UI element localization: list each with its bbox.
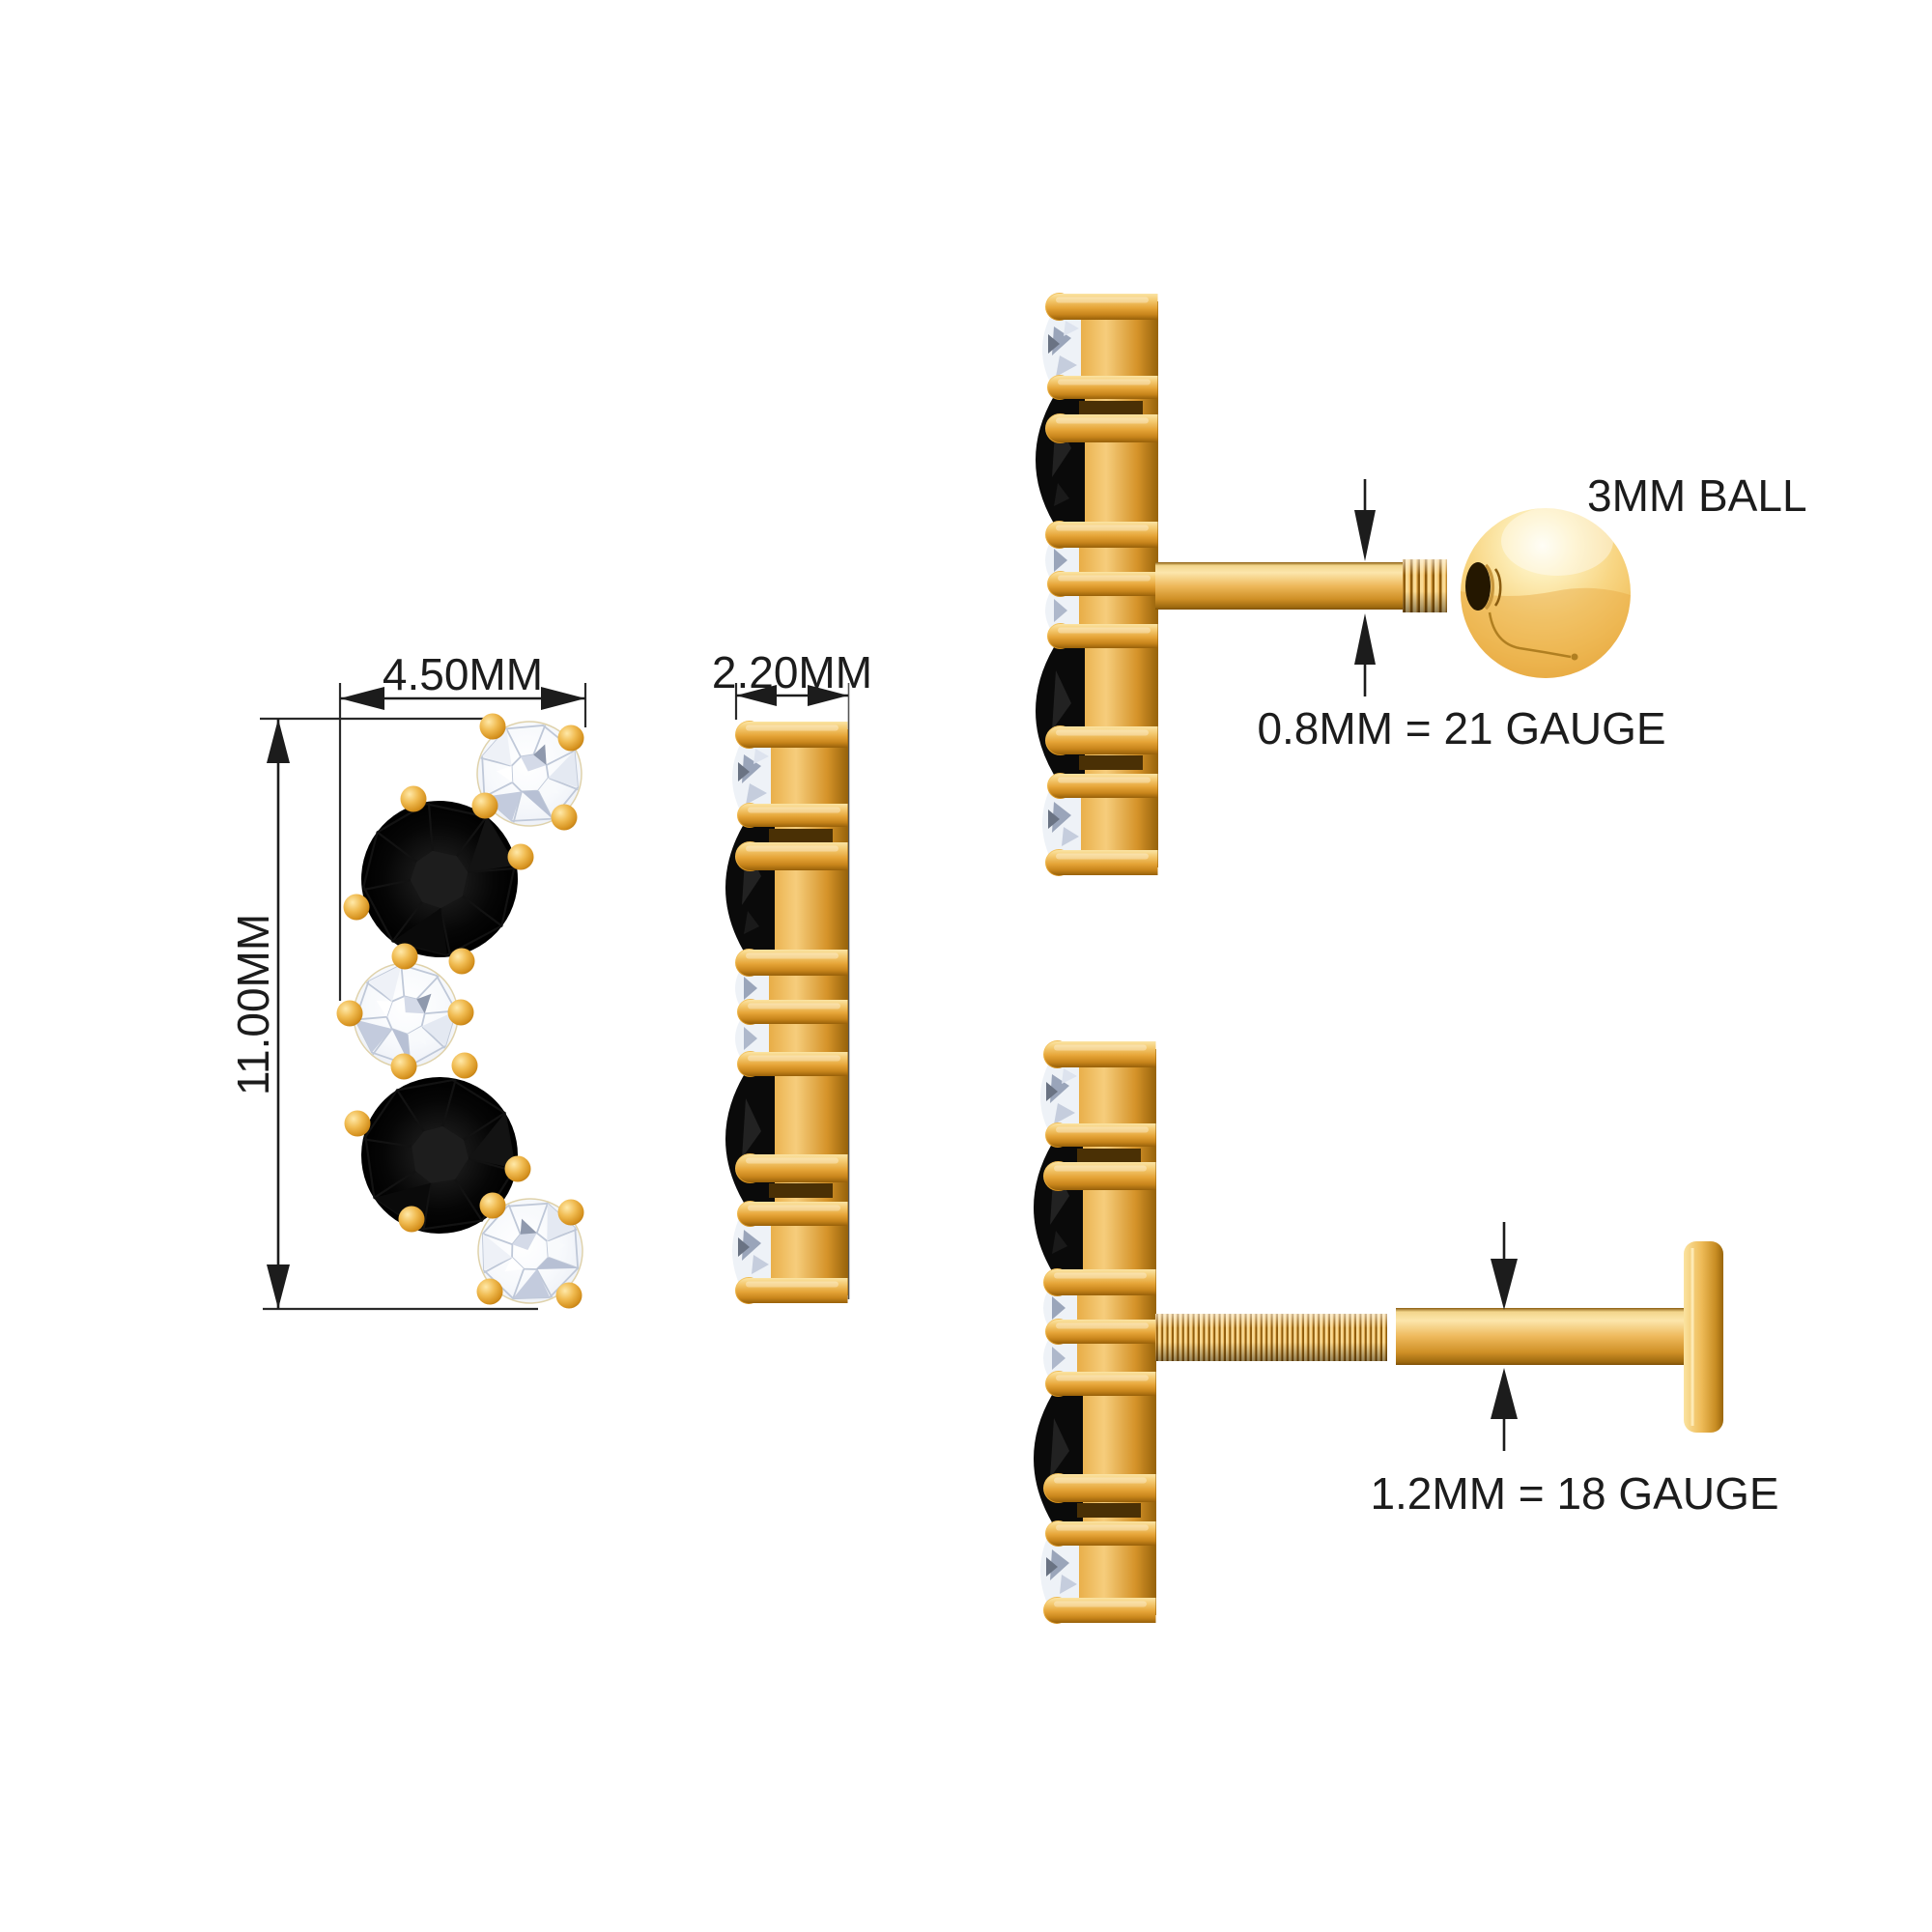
svg-text:3MM BALL: 3MM BALL [1587, 470, 1807, 521]
svg-text:4.50MM: 4.50MM [383, 649, 543, 699]
svg-text:0.8MM = 21 GAUGE: 0.8MM = 21 GAUGE [1257, 703, 1665, 753]
svg-text:11.00MM: 11.00MM [228, 914, 278, 1095]
svg-text:2.20MM: 2.20MM [712, 647, 872, 697]
svg-text:1.2MM = 18 GAUGE: 1.2MM = 18 GAUGE [1370, 1468, 1778, 1519]
